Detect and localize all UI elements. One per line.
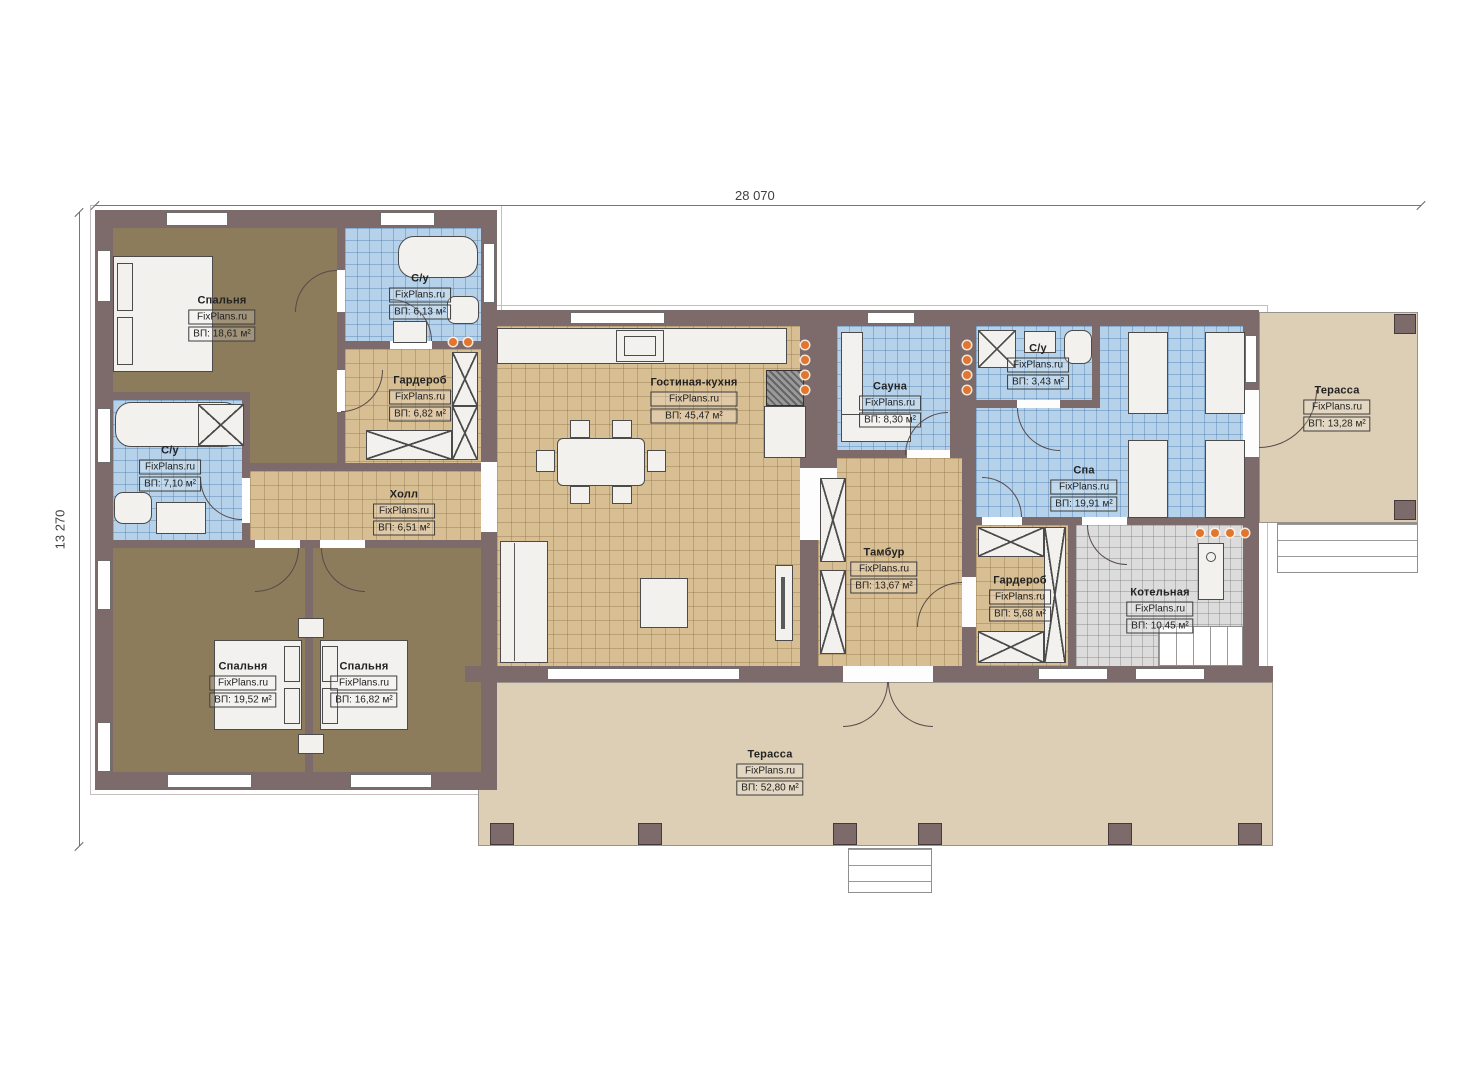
brand-watermark: FixPlans.ru xyxy=(989,590,1051,605)
spotlight xyxy=(449,338,457,346)
room-label-hall: Холл FixPlans.ru ВП: 6,51 м² xyxy=(373,489,435,536)
wall xyxy=(800,540,818,666)
wall xyxy=(1022,517,1082,525)
bath-cabinet xyxy=(198,404,244,446)
wall xyxy=(345,341,390,349)
passage-hall-living xyxy=(481,462,497,532)
room-name: Спальня xyxy=(209,661,276,674)
room-name: Котельная xyxy=(1126,587,1193,600)
window xyxy=(167,774,252,788)
room-label-wardrobe-1: Гардероб FixPlans.ru ВП: 6,82 м² xyxy=(389,375,451,422)
brand-watermark: FixPlans.ru xyxy=(736,764,803,779)
toilet xyxy=(447,296,479,324)
room-label-terrace-bottom: Терасса FixPlans.ru ВП: 52,80 м² xyxy=(736,749,803,796)
wall xyxy=(113,392,250,400)
stairs-entrance xyxy=(848,848,932,893)
room-area: ВП: 6,51 м² xyxy=(373,521,435,536)
spotlight xyxy=(963,371,971,379)
brand-watermark: FixPlans.ru xyxy=(373,504,435,519)
room-label-boiler-room: Котельная FixPlans.ru ВП: 10,45 м² xyxy=(1126,587,1193,634)
wardrobe-cabinet xyxy=(452,352,478,406)
spa-lounger xyxy=(1128,332,1168,414)
room-area: ВП: 3,43 м² xyxy=(1007,375,1069,390)
wall xyxy=(962,458,976,577)
room-area: ВП: 19,91 м² xyxy=(1050,497,1117,512)
spotlight xyxy=(1226,529,1234,537)
window xyxy=(547,668,740,680)
room-name: Гардероб xyxy=(389,375,451,388)
room-area: ВП: 6,13 м² xyxy=(389,305,451,320)
wall xyxy=(250,463,481,471)
brand-watermark: FixPlans.ru xyxy=(1050,480,1117,495)
tv-line xyxy=(781,577,785,629)
pillow xyxy=(117,317,133,365)
room-name: Спальня xyxy=(188,295,255,308)
spotlight xyxy=(963,356,971,364)
sofa xyxy=(500,541,548,663)
room-label-vestibule: Тамбур FixPlans.ru ВП: 13,67 м² xyxy=(850,547,917,594)
brand-watermark: FixPlans.ru xyxy=(1303,400,1370,415)
room-area: ВП: 16,82 м² xyxy=(330,693,397,708)
room-area: ВП: 45,47 м² xyxy=(650,409,737,424)
room-name: Терасса xyxy=(1303,385,1370,398)
window xyxy=(1038,668,1108,680)
room-label-wardrobe-2: Гардероб FixPlans.ru ВП: 5,68 м² xyxy=(989,575,1051,622)
dining-table xyxy=(557,438,645,486)
wall xyxy=(976,517,982,525)
wall xyxy=(976,400,1017,408)
wall xyxy=(1092,326,1100,408)
nightstand xyxy=(298,734,324,754)
wall xyxy=(365,540,481,548)
window xyxy=(380,212,435,226)
window xyxy=(570,312,665,324)
spotlight xyxy=(1196,529,1204,537)
room-label-bedroom-1: Спальня FixPlans.ru ВП: 18,61 м² xyxy=(188,295,255,342)
wall xyxy=(481,324,497,462)
wall xyxy=(337,412,345,463)
wall xyxy=(300,540,320,548)
wardrobe-cabinet xyxy=(978,631,1044,663)
brand-watermark: FixPlans.ru xyxy=(850,562,917,577)
room-label-living-kitchen: Гостиная-кухня FixPlans.ru ВП: 45,47 м² xyxy=(650,377,737,424)
window xyxy=(1135,668,1205,680)
stove xyxy=(766,370,804,406)
spa-lounger xyxy=(1205,440,1245,518)
terrace-post xyxy=(1108,823,1132,845)
dimension-height: 13 270 xyxy=(52,510,67,550)
brand-watermark: FixPlans.ru xyxy=(1007,358,1069,373)
threshold-bathroom-3 xyxy=(1017,400,1060,408)
room-name: С/у xyxy=(389,273,451,286)
room-name: Спальня xyxy=(330,661,397,674)
coffee-table xyxy=(640,578,688,628)
wall xyxy=(837,450,907,458)
room-area: ВП: 13,67 м² xyxy=(850,579,917,594)
wall xyxy=(1068,525,1076,666)
room-area: ВП: 6,82 м² xyxy=(389,407,451,422)
brand-watermark: FixPlans.ru xyxy=(188,310,255,325)
pillow xyxy=(284,688,300,724)
brand-watermark: FixPlans.ru xyxy=(139,460,201,475)
brand-watermark: FixPlans.ru xyxy=(859,396,921,411)
room-name: Терасса xyxy=(736,749,803,762)
room-area: ВП: 10,45 м² xyxy=(1126,619,1193,634)
room-name: Тамбур xyxy=(850,547,917,560)
room-name: Гостиная-кухня xyxy=(650,377,737,390)
floor-plan: 28 070 13 270 xyxy=(0,0,1473,1080)
room-area: ВП: 7,10 м² xyxy=(139,477,201,492)
sink xyxy=(156,502,206,534)
window xyxy=(97,250,111,302)
spa-lounger xyxy=(1205,332,1245,414)
pillow xyxy=(117,263,133,311)
kitchen-sink-basin xyxy=(624,336,656,356)
spotlight xyxy=(801,386,809,394)
sofa-back-line xyxy=(514,543,515,661)
terrace-post xyxy=(1394,314,1416,334)
room-name: Гардероб xyxy=(989,575,1051,588)
room-name: Сауна xyxy=(859,381,921,394)
window xyxy=(350,774,432,788)
wall xyxy=(337,312,345,370)
brand-watermark: FixPlans.ru xyxy=(389,390,451,405)
wall xyxy=(95,772,497,790)
brand-watermark: FixPlans.ru xyxy=(330,676,397,691)
wall xyxy=(113,540,255,548)
spotlight xyxy=(801,341,809,349)
room-area: ВП: 19,52 м² xyxy=(209,693,276,708)
spotlight xyxy=(963,341,971,349)
terrace-post xyxy=(638,823,662,845)
boiler-dial xyxy=(1206,552,1216,562)
chair xyxy=(536,450,555,472)
spotlight xyxy=(963,386,971,394)
window xyxy=(97,408,111,463)
room-name: С/у xyxy=(139,445,201,458)
wall xyxy=(337,228,345,270)
window xyxy=(1245,335,1257,383)
room-label-bathroom-1: С/у FixPlans.ru ВП: 6,13 м² xyxy=(389,273,451,320)
terrace-post xyxy=(1238,823,1262,845)
room-label-bedroom-2: Спальня FixPlans.ru ВП: 19,52 м² xyxy=(209,661,276,708)
brand-watermark: FixPlans.ru xyxy=(1126,602,1193,617)
spotlight xyxy=(801,356,809,364)
toilet xyxy=(114,492,152,524)
wardrobe-cabinet xyxy=(978,527,1044,557)
brand-watermark: FixPlans.ru xyxy=(389,288,451,303)
room-name: Холл xyxy=(373,489,435,502)
brand-watermark: FixPlans.ru xyxy=(209,676,276,691)
threshold-entrance xyxy=(843,666,933,682)
room-label-bathroom-3: С/у FixPlans.ru ВП: 3,43 м² xyxy=(1007,343,1069,390)
room-label-sauna: Сауна FixPlans.ru ВП: 8,30 м² xyxy=(859,381,921,428)
wall xyxy=(95,210,497,228)
room-area: ВП: 8,30 м² xyxy=(859,413,921,428)
wardrobe-cabinet xyxy=(452,406,478,460)
stairs-right-terrace xyxy=(1277,523,1418,573)
wardrobe-cabinet xyxy=(820,478,846,562)
wall xyxy=(242,523,250,540)
wall xyxy=(1243,457,1259,682)
room-area: ВП: 52,80 м² xyxy=(736,781,803,796)
room-label-terrace-right: Терасса FixPlans.ru ВП: 13,28 м² xyxy=(1303,385,1370,432)
spotlight xyxy=(464,338,472,346)
terrace-post xyxy=(918,823,942,845)
chair xyxy=(612,420,632,438)
room-name: С/у xyxy=(1007,343,1069,356)
room-area: ВП: 13,28 м² xyxy=(1303,417,1370,432)
spa-lounger xyxy=(1128,440,1168,518)
window xyxy=(97,560,111,610)
window xyxy=(867,312,915,324)
wall xyxy=(962,627,976,666)
window xyxy=(483,243,495,303)
terrace-post xyxy=(833,823,857,845)
wardrobe-cabinet xyxy=(366,430,452,460)
kitchen-cabinet xyxy=(764,406,806,458)
chair xyxy=(570,486,590,504)
dimension-line-left xyxy=(79,212,80,846)
dimension-width: 28 070 xyxy=(735,188,775,203)
window xyxy=(166,212,228,226)
room-name: Спа xyxy=(1050,465,1117,478)
window xyxy=(97,722,111,772)
spotlight xyxy=(801,371,809,379)
wall xyxy=(1060,400,1100,408)
hall-floor xyxy=(250,471,481,540)
room-area: ВП: 5,68 м² xyxy=(989,607,1051,622)
threshold-vestibule-wardrobe xyxy=(962,577,976,627)
nightstand xyxy=(298,618,324,638)
chair xyxy=(612,486,632,504)
wardrobe-cabinet xyxy=(820,570,846,654)
chair xyxy=(647,450,666,472)
threshold-spa-terrace xyxy=(1243,390,1259,457)
spotlight xyxy=(1211,529,1219,537)
room-label-bathroom-2: С/у FixPlans.ru ВП: 7,10 м² xyxy=(139,445,201,492)
spotlight xyxy=(1241,529,1249,537)
brand-watermark: FixPlans.ru xyxy=(650,392,737,407)
dimension-line-top xyxy=(95,205,1421,206)
terrace-post xyxy=(490,823,514,845)
wall xyxy=(1127,517,1243,525)
room-area: ВП: 18,61 м² xyxy=(188,327,255,342)
chair xyxy=(570,420,590,438)
wall xyxy=(481,532,497,790)
room-label-bedroom-3: Спальня FixPlans.ru ВП: 16,82 м² xyxy=(330,661,397,708)
room-label-spa: Спа FixPlans.ru ВП: 19,91 м² xyxy=(1050,465,1117,512)
terrace-post xyxy=(1394,500,1416,520)
pillow xyxy=(284,646,300,682)
